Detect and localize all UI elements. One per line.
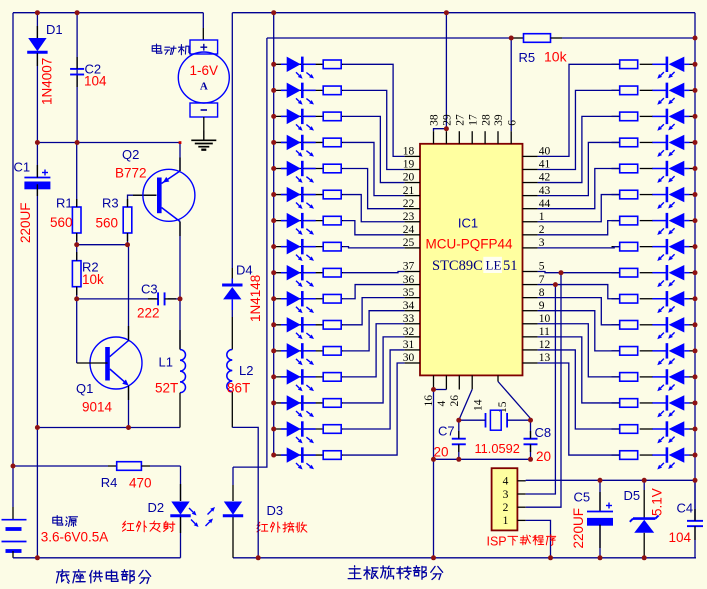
svg-text:LE: LE	[486, 258, 502, 273]
svg-text:D2: D2	[148, 500, 165, 515]
svg-text:52T: 52T	[155, 381, 178, 396]
svg-text:MCU-PQFP44: MCU-PQFP44	[425, 237, 513, 252]
svg-text:C8: C8	[535, 425, 552, 440]
svg-text:R3: R3	[102, 196, 119, 211]
svg-text:2: 2	[503, 502, 509, 514]
svg-text:IC1: IC1	[458, 216, 478, 231]
svg-text:470: 470	[129, 476, 152, 491]
svg-text:32: 32	[403, 326, 415, 338]
svg-text:D1: D1	[46, 22, 63, 37]
svg-text:560: 560	[96, 216, 119, 231]
svg-text:104: 104	[84, 74, 107, 89]
svg-text:24: 24	[403, 224, 415, 236]
svg-text:23: 23	[403, 211, 415, 223]
svg-text:D3: D3	[267, 503, 284, 518]
svg-text:Q2: Q2	[122, 147, 139, 162]
svg-text:86T: 86T	[227, 381, 250, 396]
svg-text:19: 19	[403, 159, 415, 171]
svg-text:1: 1	[539, 211, 545, 223]
svg-text:R5: R5	[519, 50, 536, 65]
svg-text:17: 17	[467, 114, 479, 126]
svg-text:39: 39	[493, 114, 505, 126]
svg-text:10k: 10k	[82, 272, 104, 287]
svg-text:1N4148: 1N4148	[248, 275, 263, 322]
svg-text:14: 14	[473, 399, 485, 411]
svg-text:21: 21	[403, 185, 415, 197]
svg-text:3: 3	[539, 237, 545, 249]
svg-text:C3: C3	[141, 282, 158, 297]
svg-text:11.0592: 11.0592	[475, 441, 520, 456]
svg-text:10: 10	[539, 313, 551, 325]
svg-text:35: 35	[403, 287, 415, 299]
svg-text:R1: R1	[56, 196, 73, 211]
svg-text:37: 37	[403, 261, 415, 273]
svg-text:560: 560	[50, 215, 73, 230]
svg-text:5.1V: 5.1V	[650, 488, 665, 516]
svg-text:220UF: 220UF	[571, 508, 586, 549]
svg-text:3: 3	[503, 489, 509, 501]
svg-text:4: 4	[436, 401, 448, 407]
svg-text:12: 12	[539, 339, 551, 351]
svg-text:1-6V: 1-6V	[190, 63, 219, 78]
svg-text:33: 33	[403, 313, 415, 325]
svg-text:1N4007: 1N4007	[40, 58, 55, 105]
svg-text:3.6-6V0.5A: 3.6-6V0.5A	[41, 530, 109, 545]
svg-text:C1: C1	[14, 160, 31, 175]
svg-text:22: 22	[403, 198, 415, 210]
svg-text:40: 40	[539, 146, 551, 158]
svg-text:9014: 9014	[82, 400, 113, 415]
svg-text:18: 18	[403, 146, 415, 158]
svg-text:A: A	[200, 81, 208, 93]
svg-text:STC89C: STC89C	[432, 258, 483, 274]
svg-text:7: 7	[539, 274, 545, 286]
svg-text:20: 20	[434, 445, 449, 460]
svg-text:20: 20	[536, 449, 551, 464]
svg-text:L2: L2	[239, 363, 253, 378]
svg-text:44: 44	[539, 198, 551, 210]
svg-text:43: 43	[539, 185, 551, 197]
svg-text:25: 25	[403, 237, 415, 249]
svg-text:11: 11	[539, 326, 550, 338]
svg-text:C4: C4	[677, 501, 694, 516]
svg-text:31: 31	[403, 339, 415, 351]
svg-text:51: 51	[503, 258, 518, 274]
svg-text:B772: B772	[115, 166, 147, 181]
svg-text:10k: 10k	[544, 49, 568, 65]
svg-text:26: 26	[449, 395, 461, 407]
svg-text:R4: R4	[101, 475, 118, 490]
svg-text:2: 2	[539, 224, 545, 236]
svg-text:222: 222	[137, 306, 160, 321]
svg-text:30: 30	[403, 352, 415, 364]
svg-text:29: 29	[442, 114, 454, 126]
svg-text:15: 15	[497, 401, 509, 413]
svg-text:C7: C7	[438, 424, 455, 439]
svg-text:220UF: 220UF	[18, 202, 33, 243]
svg-text:38: 38	[429, 114, 441, 126]
svg-text:D5: D5	[624, 488, 641, 503]
svg-text:13: 13	[539, 352, 551, 364]
svg-text:1: 1	[503, 515, 509, 527]
svg-text:20: 20	[403, 172, 415, 184]
svg-text:42: 42	[539, 172, 551, 184]
svg-text:ISP: ISP	[487, 535, 507, 549]
svg-text:104: 104	[669, 530, 692, 545]
svg-text:34: 34	[403, 300, 415, 312]
svg-text:C5: C5	[574, 490, 591, 505]
svg-text:Q1: Q1	[76, 381, 93, 396]
svg-text:36: 36	[403, 274, 415, 286]
svg-text:6: 6	[506, 120, 518, 126]
svg-text:4: 4	[503, 476, 509, 488]
svg-text:27: 27	[455, 114, 467, 126]
svg-text:9: 9	[539, 300, 545, 312]
svg-text:L1: L1	[159, 355, 173, 370]
svg-text:41: 41	[539, 159, 551, 171]
svg-text:5: 5	[539, 261, 545, 273]
svg-text:28: 28	[480, 114, 492, 126]
svg-text:8: 8	[539, 287, 545, 299]
